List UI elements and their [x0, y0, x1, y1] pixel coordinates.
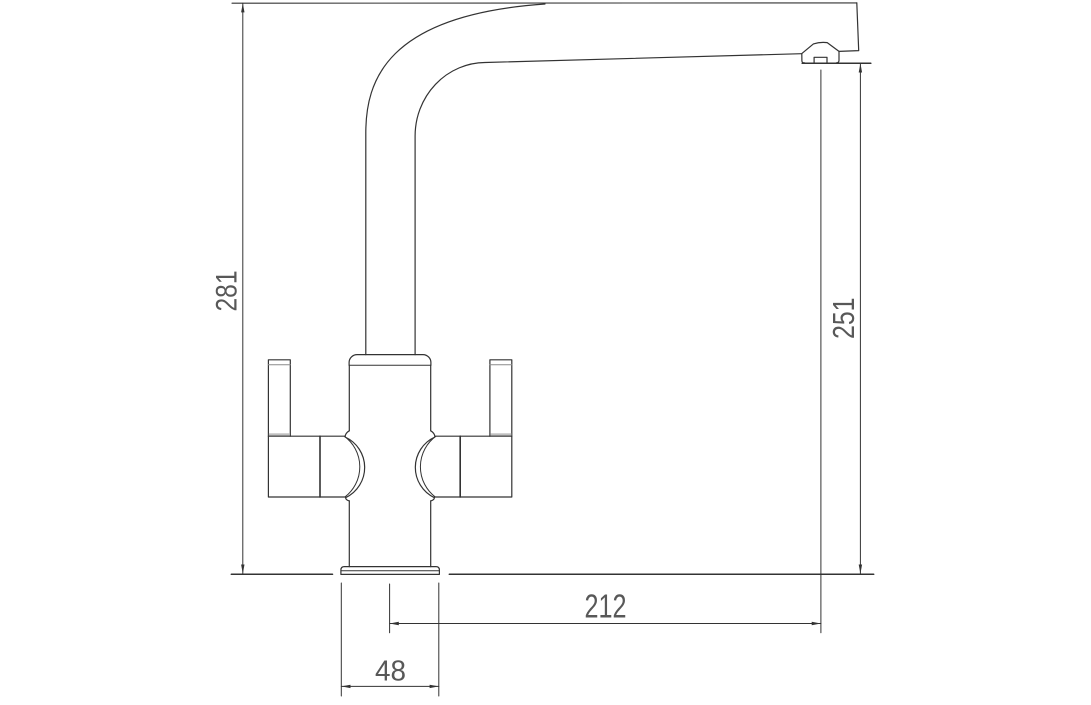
svg-text:281: 281 [211, 271, 244, 312]
svg-text:212: 212 [585, 588, 627, 625]
svg-text:251: 251 [827, 298, 861, 340]
svg-text:48: 48 [375, 656, 406, 688]
